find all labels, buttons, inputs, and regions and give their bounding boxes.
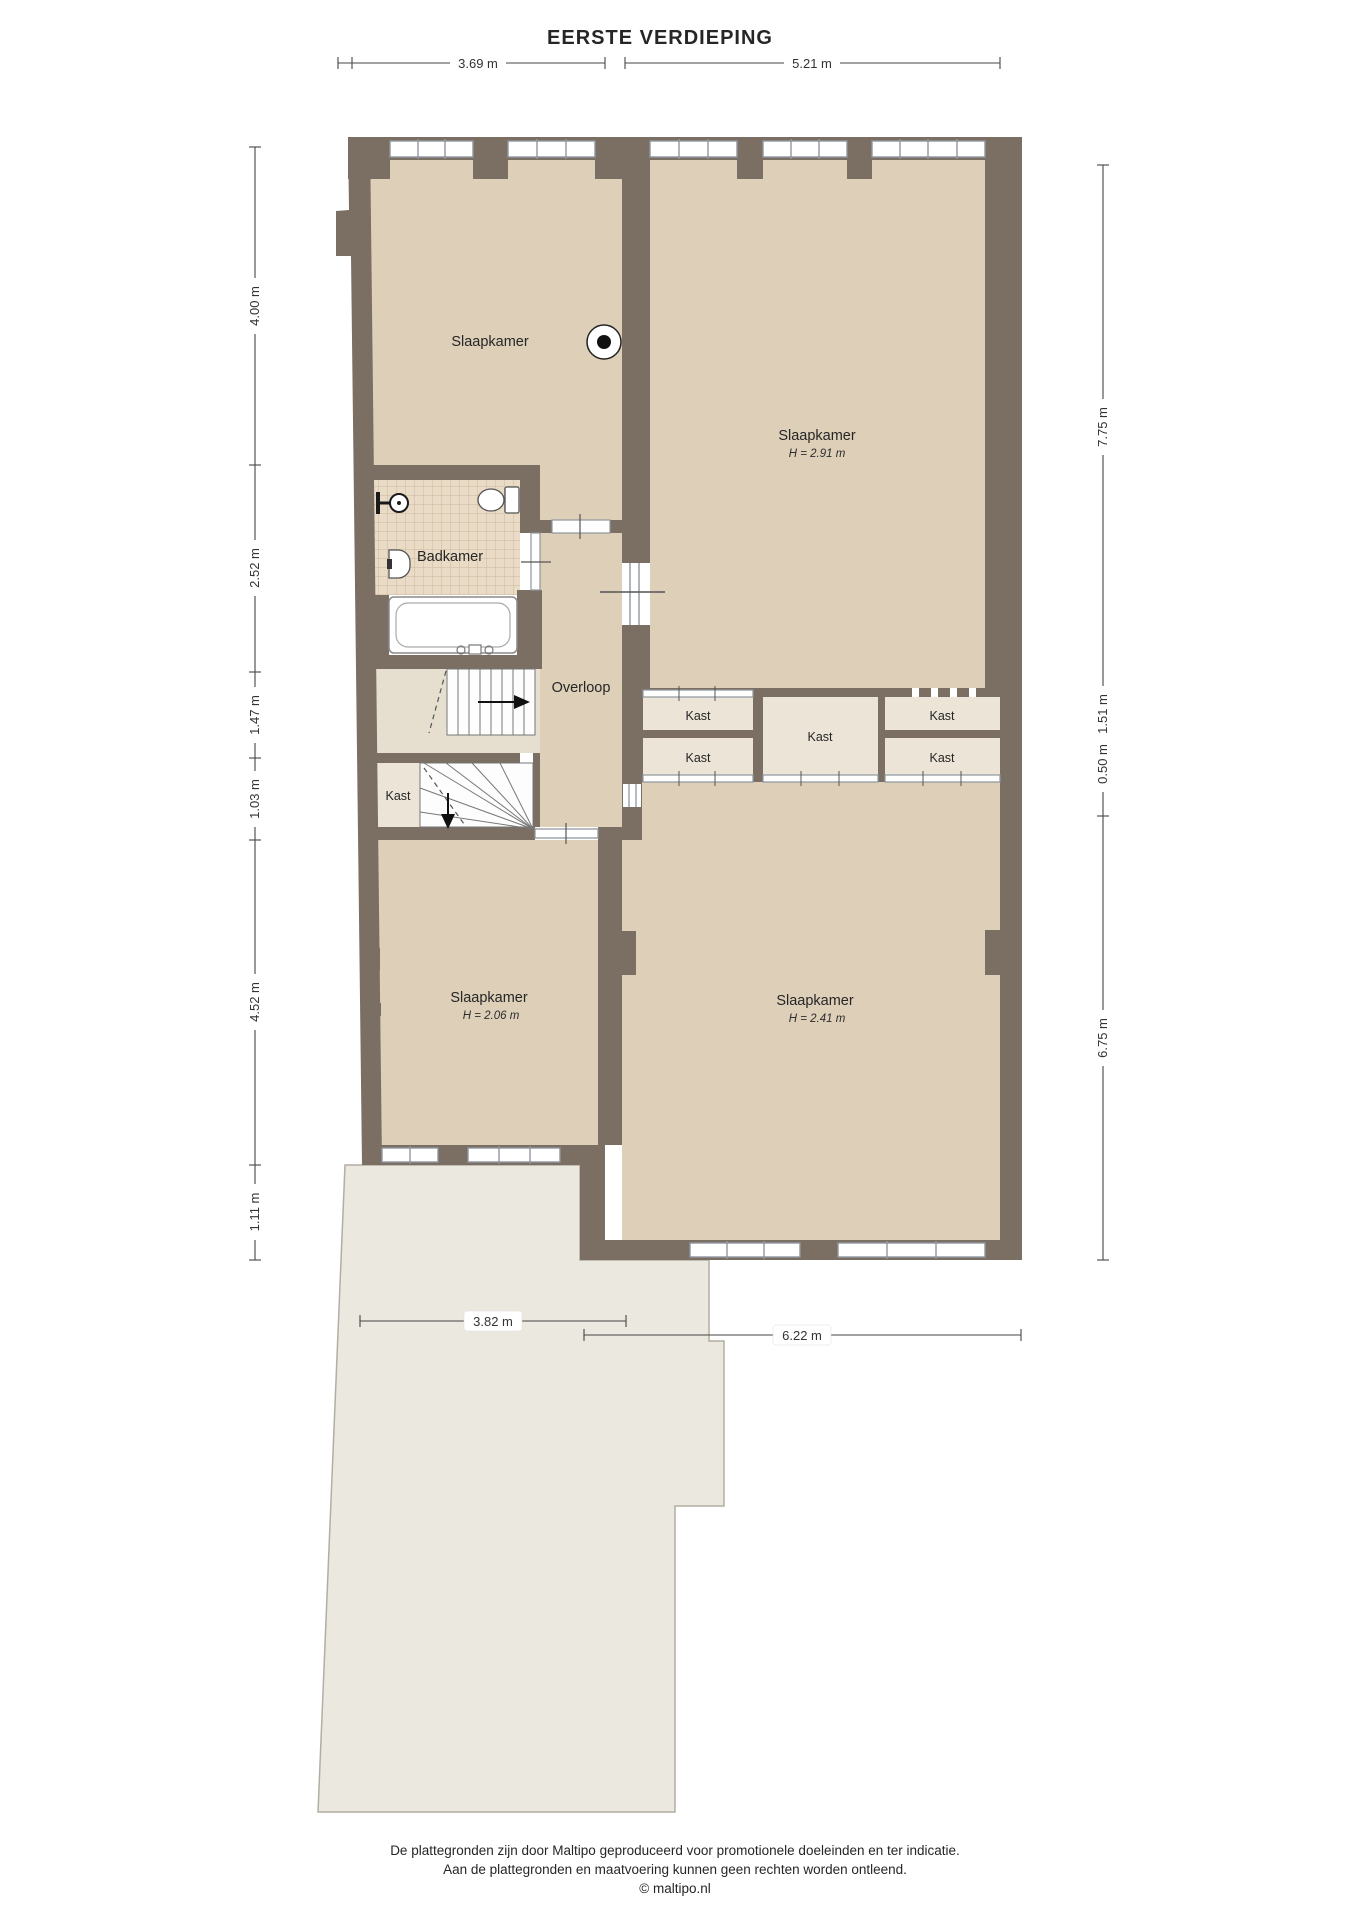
wall-pier-bl-2 xyxy=(365,1003,381,1016)
floorplan-page: EERSTE VERDIEPING 3.69 m 5.21 m 4.00 m 2… xyxy=(0,0,1358,1920)
wall-pier-bl-1 xyxy=(364,948,380,970)
wall-right-lower xyxy=(1000,688,1022,1260)
wall-closetrow-v2 xyxy=(878,697,885,775)
wall-br-bottom-c xyxy=(985,1240,1022,1260)
garden-area xyxy=(318,1165,724,1812)
wall-right-upper xyxy=(985,137,1022,688)
dim-top-1: 3.69 m xyxy=(458,56,498,71)
wall-tub-left xyxy=(375,595,389,655)
label-closet-1: Kast xyxy=(685,709,711,723)
label-closet-3: Kast xyxy=(807,730,833,744)
height-bedroom-bottom-right: H = 2.41 m xyxy=(789,1013,846,1025)
dim-left-3: 1.47 m xyxy=(247,695,262,735)
toilet-icon xyxy=(478,487,519,513)
label-closet-stairs: Kast xyxy=(385,789,411,803)
wall-closetrow-bottom-b xyxy=(753,775,763,782)
footer-line-3: © maltipo.nl xyxy=(639,1881,710,1896)
dim-right-2: 1.51 m xyxy=(1095,694,1110,734)
wall-top-corner-left xyxy=(348,137,390,179)
door-bedroom-bottom-right xyxy=(623,784,641,807)
closet-open-dashed xyxy=(900,688,983,697)
dim-left-2: 2.52 m xyxy=(247,548,262,588)
label-bathroom: Badkamer xyxy=(417,549,483,565)
ceiling-light-icon xyxy=(587,325,621,359)
window-top-2 xyxy=(508,139,595,159)
floor-plan: EERSTE VERDIEPING 3.69 m 5.21 m 4.00 m 2… xyxy=(0,0,1358,1920)
dim-garden-1: 3.82 m xyxy=(473,1314,513,1329)
wall-pier-br-left xyxy=(622,931,636,975)
label-bedroom-top-right: Slaapkamer xyxy=(778,428,856,444)
dim-right-1: 7.75 m xyxy=(1095,407,1110,447)
window-bottom-right-2 xyxy=(838,1241,985,1259)
floor-bedroom-bottom-right xyxy=(622,782,1000,1240)
wall-bathroom-right-lower xyxy=(517,590,542,658)
wall-divider-bottom-upper xyxy=(598,840,622,1145)
footer-line-2: Aan de plattegronden en maatvoering kunn… xyxy=(443,1862,907,1877)
wall-divider-top-lower xyxy=(622,625,650,688)
wall-tub-bottom xyxy=(375,655,542,669)
wall-divider-top xyxy=(622,159,650,563)
dim-right-4: 6.75 m xyxy=(1095,1018,1110,1058)
wall-closetrow-bottom-c xyxy=(878,775,885,782)
page-title: EERSTE VERDIEPING xyxy=(547,27,773,49)
dim-top-2: 5.21 m xyxy=(792,56,832,71)
wall-right-pier xyxy=(985,930,1000,975)
height-bedroom-bottom-left: H = 2.06 m xyxy=(463,1010,520,1022)
wall-closetrow-v1 xyxy=(753,697,763,775)
label-bedroom-bottom-left: Slaapkamer xyxy=(450,990,528,1006)
wall-closetrow-bottom-a xyxy=(622,775,643,782)
dim-right-3: 0.50 m xyxy=(1095,744,1110,784)
wall-bedroomTL-bottom xyxy=(370,465,540,480)
washbasin-icon xyxy=(387,550,410,578)
window-top-4 xyxy=(763,139,847,159)
wall-door1-right xyxy=(610,520,622,533)
wall-bottomleft-top-b xyxy=(598,827,622,840)
floor-bedroom-top-right xyxy=(650,159,985,688)
label-closet-5: Kast xyxy=(929,751,955,765)
wall-closetrow-mid-b xyxy=(885,730,1000,738)
wall-br-bottom-a xyxy=(580,1240,690,1260)
wall-closetrow-left xyxy=(622,688,643,782)
dim-left-1: 4.00 m xyxy=(247,286,262,326)
window-bottom-left-2 xyxy=(468,1146,560,1164)
footer-line-1: De plattegronden zijn door Maltipo gepro… xyxy=(390,1843,960,1858)
wall-bl-bottom-corner xyxy=(560,1145,605,1165)
wall-bottomleft-top-a xyxy=(362,827,535,840)
stairs-down xyxy=(420,763,533,829)
wall-bathroom-right-upper xyxy=(520,480,540,533)
label-bedroom-bottom-right: Slaapkamer xyxy=(776,993,854,1009)
window-bottom-right-1 xyxy=(690,1241,800,1259)
wall-door1-left xyxy=(540,520,552,533)
label-bedroom-top-left: Slaapkamer xyxy=(451,334,529,350)
label-closet-4: Kast xyxy=(929,709,955,723)
window-bottom-left-1 xyxy=(382,1146,438,1164)
height-bedroom-top-right: H = 2.91 m xyxy=(789,448,846,460)
dim-left-4: 1.03 m xyxy=(247,779,262,819)
bathtub-icon xyxy=(389,597,517,654)
wall-closetrow-top-b xyxy=(983,688,1000,697)
wall-closetrow-mid-a xyxy=(643,730,753,738)
wall-stair-right xyxy=(533,753,540,827)
label-landing: Overloop xyxy=(552,680,611,696)
label-closet-2: Kast xyxy=(685,751,711,765)
window-top-3 xyxy=(650,139,737,159)
window-top-1 xyxy=(390,139,473,159)
dim-garden-2: 6.22 m xyxy=(782,1328,822,1343)
dim-left-5: 4.52 m xyxy=(247,982,262,1022)
window-top-5 xyxy=(872,139,985,159)
dim-left-6: 1.11 m xyxy=(247,1193,262,1232)
wall-stair-mid xyxy=(372,753,520,763)
